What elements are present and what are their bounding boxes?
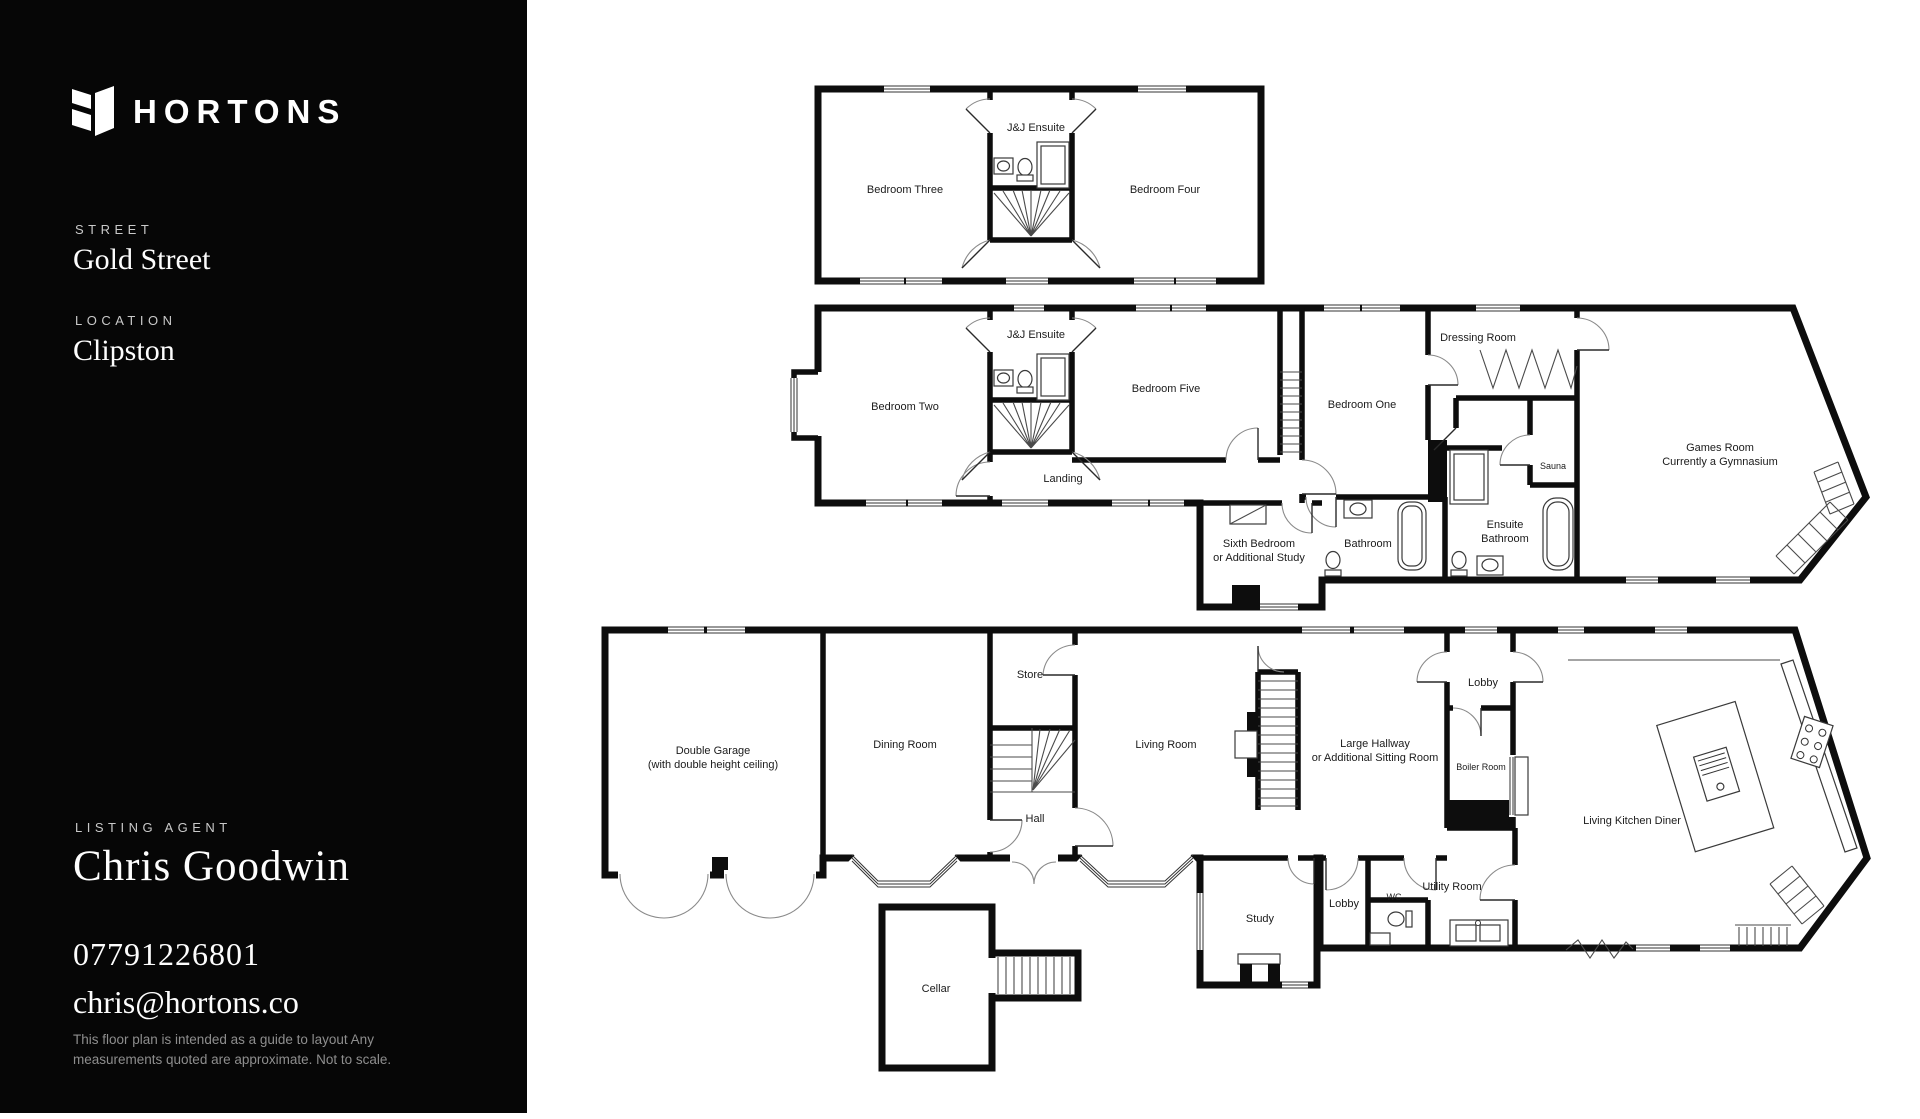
bedroom-two-bay-window xyxy=(790,372,823,438)
room-label-games-room-1: Games Room xyxy=(1686,442,1754,454)
room-label-large-hallway-2: or Additional Sitting Room xyxy=(1312,752,1439,764)
room-label-lobby-upper: Lobby xyxy=(1468,677,1498,689)
room-label-study: Study xyxy=(1246,913,1275,925)
dining-room-bay-window xyxy=(852,855,957,887)
study-fireplace xyxy=(1238,954,1280,985)
room-label-bedroom-four: Bedroom Four xyxy=(1130,184,1201,196)
front-door xyxy=(1010,854,1058,885)
first-floor-main-stairs xyxy=(994,402,1069,448)
room-label-double-garage-2: (with double height ceiling) xyxy=(648,759,778,771)
room-label-bedroom-two: Bedroom Two xyxy=(871,401,939,413)
first-floor-windows xyxy=(866,304,1750,612)
ground-floor-main-stairs xyxy=(990,728,1075,792)
room-label-sixth-bedroom-2: or Additional Study xyxy=(1213,552,1305,564)
floor-plan: Bedroom Three J&J Ensuite Bedroom Four xyxy=(0,0,1920,1119)
room-label-wc: WC xyxy=(1387,892,1402,902)
room-label-sauna: Sauna xyxy=(1540,461,1566,471)
room-label-utility-room: Utility Room xyxy=(1422,881,1481,893)
second-floor-stairs xyxy=(994,190,1069,236)
first-floor-plan: Bedroom Two J&J Ensuite Bedroom Five Lan… xyxy=(790,304,1867,612)
utility-sink xyxy=(1450,920,1508,946)
room-label-bedroom-one: Bedroom One xyxy=(1328,399,1396,411)
first-floor-ensuite-fixtures xyxy=(994,354,1069,400)
living-room-bay-window xyxy=(1080,855,1193,887)
boiler-chimney-block xyxy=(1447,800,1515,828)
room-label-bathroom: Bathroom xyxy=(1344,538,1392,550)
room-label-double-garage-1: Double Garage xyxy=(676,745,751,757)
room-label-ensuite-bathroom-2: Bathroom xyxy=(1481,533,1529,545)
room-label-boiler-room: Boiler Room xyxy=(1456,762,1506,772)
wc-fixtures xyxy=(1370,911,1412,945)
living-room-fireplace xyxy=(1235,712,1257,777)
first-floor-chimney xyxy=(1428,440,1447,502)
second-floor-plan: Bedroom Three J&J Ensuite Bedroom Four xyxy=(818,85,1261,286)
cellar-plan xyxy=(882,907,1078,1068)
room-label-lobby-lower: Lobby xyxy=(1329,898,1359,910)
room-label-cellar: Cellar xyxy=(922,983,951,995)
room-label-games-room-2: Currently a Gymnasium xyxy=(1662,456,1778,468)
room-label-landing: Landing xyxy=(1043,473,1082,485)
room-label-living-room: Living Room xyxy=(1135,739,1196,751)
room-label-dressing-room: Dressing Room xyxy=(1440,332,1516,344)
room-label-living-kitchen-diner: Living Kitchen Diner xyxy=(1583,815,1681,827)
second-floor-ensuite-fixtures xyxy=(994,142,1069,188)
ground-floor-outer-walls xyxy=(605,630,1867,985)
room-label-jj-ensuite-2f: J&J Ensuite xyxy=(1007,122,1065,134)
ground-floor-windows xyxy=(668,626,1730,990)
room-label-bedroom-five: Bedroom Five xyxy=(1132,383,1200,395)
room-label-jj-ensuite-1f: J&J Ensuite xyxy=(1007,329,1065,341)
room-label-hall: Hall xyxy=(1026,813,1045,825)
room-label-dining-room: Dining Room xyxy=(873,739,937,751)
room-label-sixth-bedroom-1: Sixth Bedroom xyxy=(1223,538,1295,550)
room-label-ensuite-bathroom-1: Ensuite xyxy=(1487,519,1524,531)
ground-floor-upper-stairs xyxy=(1258,681,1298,806)
ground-floor-interior-walls xyxy=(823,630,1515,948)
kitchen-island xyxy=(1657,702,1774,852)
room-label-large-hallway-1: Large Hallway xyxy=(1340,738,1410,750)
first-floor-secondary-stairs xyxy=(1280,372,1302,452)
dressing-room-wardrobe xyxy=(1480,350,1577,388)
sixth-bedroom-block xyxy=(1232,585,1260,607)
room-label-bedroom-three: Bedroom Three xyxy=(867,184,943,196)
sixth-bedroom-wardrobe xyxy=(1230,505,1266,524)
ground-floor-plan: Double Garage (with double height ceilin… xyxy=(605,626,1867,1069)
room-label-store: Store xyxy=(1017,669,1043,681)
